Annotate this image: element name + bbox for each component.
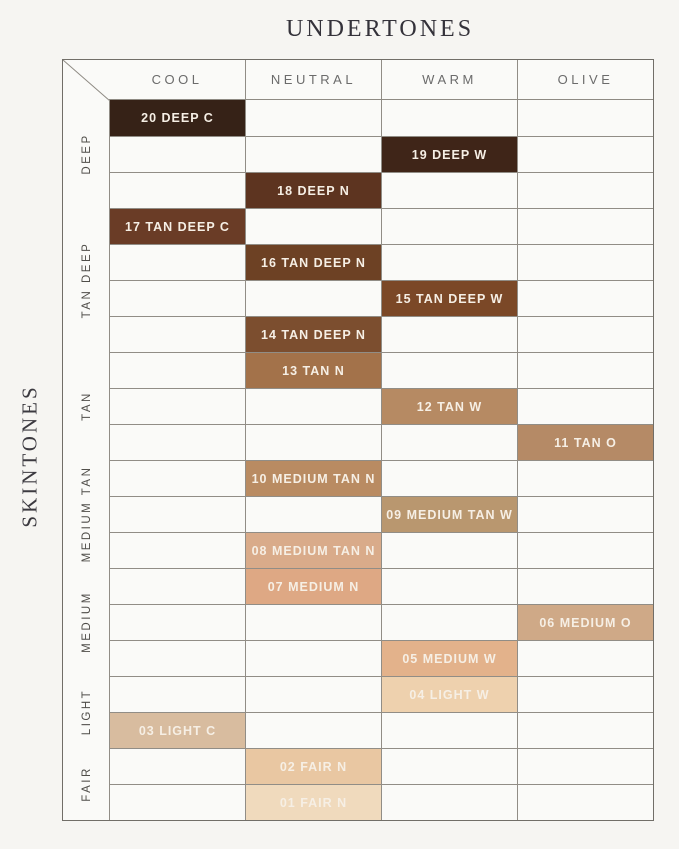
skintone-group-label: MEDIUM TAN	[81, 466, 93, 563]
empty-cell	[109, 425, 245, 460]
skintone-group-label: TAN	[81, 391, 93, 421]
shade-swatch: 19 DEEP W	[381, 137, 517, 172]
table-row: 09 MEDIUM TAN W	[109, 496, 653, 532]
table-row: 06 MEDIUM O	[109, 604, 653, 640]
shade-label: 18 DEEP N	[277, 184, 350, 198]
empty-cell	[517, 317, 653, 352]
column-header-warm: WARM	[381, 60, 517, 99]
empty-cell	[517, 785, 653, 820]
table-row: 17 TAN DEEP C	[109, 208, 653, 244]
empty-cell	[517, 389, 653, 424]
empty-cell	[517, 281, 653, 316]
shade-swatch: 04 LIGHT W	[381, 677, 517, 712]
empty-cell	[517, 100, 653, 136]
empty-cell	[381, 713, 517, 748]
shade-swatch: 11 TAN O	[517, 425, 653, 460]
empty-cell	[381, 785, 517, 820]
table-row: 18 DEEP N	[109, 172, 653, 208]
empty-cell	[517, 641, 653, 676]
table-row: 04 LIGHT W	[109, 676, 653, 712]
empty-cell	[109, 569, 245, 604]
shade-swatch: 18 DEEP N	[245, 173, 381, 208]
shade-swatch: 02 FAIR N	[245, 749, 381, 784]
empty-cell	[245, 137, 381, 172]
empty-cell	[517, 353, 653, 388]
empty-cell	[517, 209, 653, 244]
empty-cell	[381, 605, 517, 640]
shade-swatch: 15 TAN DEEP W	[381, 281, 517, 316]
column-header-neutral: NEUTRAL	[245, 60, 381, 99]
empty-cell	[381, 245, 517, 280]
empty-cell	[245, 497, 381, 532]
chart-title: UNDERTONES	[108, 16, 652, 43]
shade-label: 10 MEDIUM TAN N	[252, 472, 376, 486]
empty-cell	[109, 389, 245, 424]
shade-swatch: 16 TAN DEEP N	[245, 245, 381, 280]
axis-title-skintones: SKINTONES	[18, 384, 43, 527]
table-row: 11 TAN O	[109, 424, 653, 460]
empty-cell	[381, 569, 517, 604]
shade-swatch: 10 MEDIUM TAN N	[245, 461, 381, 496]
empty-cell	[109, 533, 245, 568]
header-row: COOLNEUTRALWARMOLIVE	[109, 60, 653, 100]
empty-cell	[245, 389, 381, 424]
empty-cell	[517, 677, 653, 712]
empty-cell	[517, 497, 653, 532]
shade-label: 19 DEEP W	[412, 148, 487, 162]
shade-label: 13 TAN N	[282, 364, 345, 378]
shade-label: 15 TAN DEEP W	[396, 292, 504, 306]
table-row: 05 MEDIUM W	[109, 640, 653, 676]
empty-cell	[109, 677, 245, 712]
empty-cell	[109, 353, 245, 388]
table-row: 10 MEDIUM TAN N	[109, 460, 653, 496]
skintone-group-label: DEEP	[81, 133, 93, 174]
empty-cell	[245, 281, 381, 316]
empty-cell	[245, 425, 381, 460]
empty-cell	[381, 317, 517, 352]
empty-cell	[381, 100, 517, 136]
matrix-data-area: COOLNEUTRALWARMOLIVE 20 DEEP C19 DEEP W1…	[109, 60, 653, 820]
skintone-group-label: TAN DEEP	[81, 242, 93, 319]
skintone-group-label: MEDIUM	[81, 591, 93, 653]
empty-cell	[381, 461, 517, 496]
table-row: 07 MEDIUM N	[109, 568, 653, 604]
shade-label: 02 FAIR N	[280, 760, 347, 774]
table-row: 14 TAN DEEP N	[109, 316, 653, 352]
empty-cell	[245, 713, 381, 748]
shade-swatch: 05 MEDIUM W	[381, 641, 517, 676]
shade-swatch: 08 MEDIUM TAN N	[245, 533, 381, 568]
shade-label: 04 LIGHT W	[409, 688, 489, 702]
shade-swatch: 12 TAN W	[381, 389, 517, 424]
empty-cell	[109, 137, 245, 172]
table-row: 19 DEEP W	[109, 136, 653, 172]
shade-swatch: 09 MEDIUM TAN W	[381, 497, 517, 532]
empty-cell	[381, 209, 517, 244]
shade-label: 09 MEDIUM TAN W	[386, 508, 513, 522]
shade-label: 16 TAN DEEP N	[261, 256, 366, 270]
empty-cell	[245, 209, 381, 244]
shade-label: 06 MEDIUM O	[539, 616, 631, 630]
shade-label: 14 TAN DEEP N	[261, 328, 366, 342]
table-row: 01 FAIR N	[109, 784, 653, 820]
empty-cell	[517, 569, 653, 604]
skintone-label-column: DEEPTAN DEEPTANMEDIUM TANMEDIUMLIGHTFAIR	[63, 60, 109, 820]
table-row: 15 TAN DEEP W	[109, 280, 653, 316]
empty-cell	[245, 677, 381, 712]
shade-label: 05 MEDIUM W	[402, 652, 496, 666]
empty-cell	[517, 749, 653, 784]
skintone-group-label: LIGHT	[81, 689, 93, 735]
table-row: 16 TAN DEEP N	[109, 244, 653, 280]
shade-swatch: 17 TAN DEEP C	[109, 209, 245, 244]
empty-cell	[245, 641, 381, 676]
shade-swatch: 07 MEDIUM N	[245, 569, 381, 604]
shade-label: 17 TAN DEEP C	[125, 220, 230, 234]
empty-cell	[109, 641, 245, 676]
table-row: 02 FAIR N	[109, 748, 653, 784]
shade-swatch: 13 TAN N	[245, 353, 381, 388]
empty-cell	[517, 137, 653, 172]
shade-label: 12 TAN W	[417, 400, 482, 414]
empty-cell	[381, 173, 517, 208]
shade-label: 08 MEDIUM TAN N	[252, 544, 376, 558]
shade-swatch: 03 LIGHT C	[109, 713, 245, 748]
table-row: 12 TAN W	[109, 388, 653, 424]
table-row: 08 MEDIUM TAN N	[109, 532, 653, 568]
empty-cell	[517, 173, 653, 208]
empty-cell	[517, 245, 653, 280]
empty-cell	[381, 749, 517, 784]
empty-cell	[109, 605, 245, 640]
table-row: 13 TAN N	[109, 352, 653, 388]
shade-swatch: 14 TAN DEEP N	[245, 317, 381, 352]
empty-cell	[517, 461, 653, 496]
table-row: 20 DEEP C	[109, 100, 653, 136]
empty-cell	[109, 785, 245, 820]
empty-cell	[109, 317, 245, 352]
empty-cell	[109, 281, 245, 316]
shade-label: 03 LIGHT C	[139, 724, 216, 738]
shade-label: 20 DEEP C	[141, 111, 214, 125]
shade-matrix: DEEPTAN DEEPTANMEDIUM TANMEDIUMLIGHTFAIR…	[62, 59, 654, 821]
empty-cell	[517, 713, 653, 748]
skintone-group-label: FAIR	[81, 766, 93, 802]
empty-cell	[109, 245, 245, 280]
shade-swatch: 20 DEEP C	[109, 100, 245, 136]
empty-cell	[109, 173, 245, 208]
table-row: 03 LIGHT C	[109, 712, 653, 748]
shade-label: 01 FAIR N	[280, 796, 347, 810]
empty-cell	[109, 497, 245, 532]
empty-cell	[381, 533, 517, 568]
empty-cell	[381, 353, 517, 388]
shade-label: 11 TAN O	[554, 436, 617, 450]
empty-cell	[381, 425, 517, 460]
shade-swatch: 01 FAIR N	[245, 785, 381, 820]
empty-cell	[109, 749, 245, 784]
empty-cell	[245, 605, 381, 640]
column-header-cool: COOL	[109, 60, 245, 99]
empty-cell	[245, 100, 381, 136]
empty-cell	[109, 461, 245, 496]
grid-body: 20 DEEP C19 DEEP W18 DEEP N17 TAN DEEP C…	[109, 100, 653, 820]
column-header-olive: OLIVE	[517, 60, 653, 99]
shade-label: 07 MEDIUM N	[268, 580, 360, 594]
empty-cell	[517, 533, 653, 568]
shade-swatch: 06 MEDIUM O	[517, 605, 653, 640]
